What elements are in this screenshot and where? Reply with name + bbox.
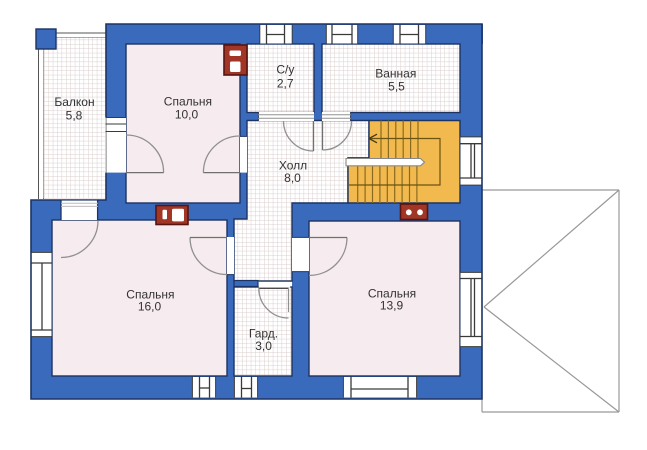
svg-text:2,7: 2,7 (277, 77, 294, 91)
svg-text:С/у: С/у (276, 63, 294, 77)
svg-text:5,8: 5,8 (66, 108, 83, 122)
svg-text:Спальня: Спальня (164, 95, 212, 109)
svg-text:Балкон: Балкон (54, 95, 94, 109)
svg-text:13,9: 13,9 (380, 299, 404, 313)
svg-text:Ванная: Ванная (375, 67, 416, 81)
svg-text:10,0: 10,0 (175, 108, 199, 122)
svg-text:3,0: 3,0 (255, 339, 272, 353)
svg-text:5,5: 5,5 (388, 80, 405, 94)
svg-text:8,0: 8,0 (284, 171, 301, 185)
svg-text:16,0: 16,0 (138, 299, 162, 313)
